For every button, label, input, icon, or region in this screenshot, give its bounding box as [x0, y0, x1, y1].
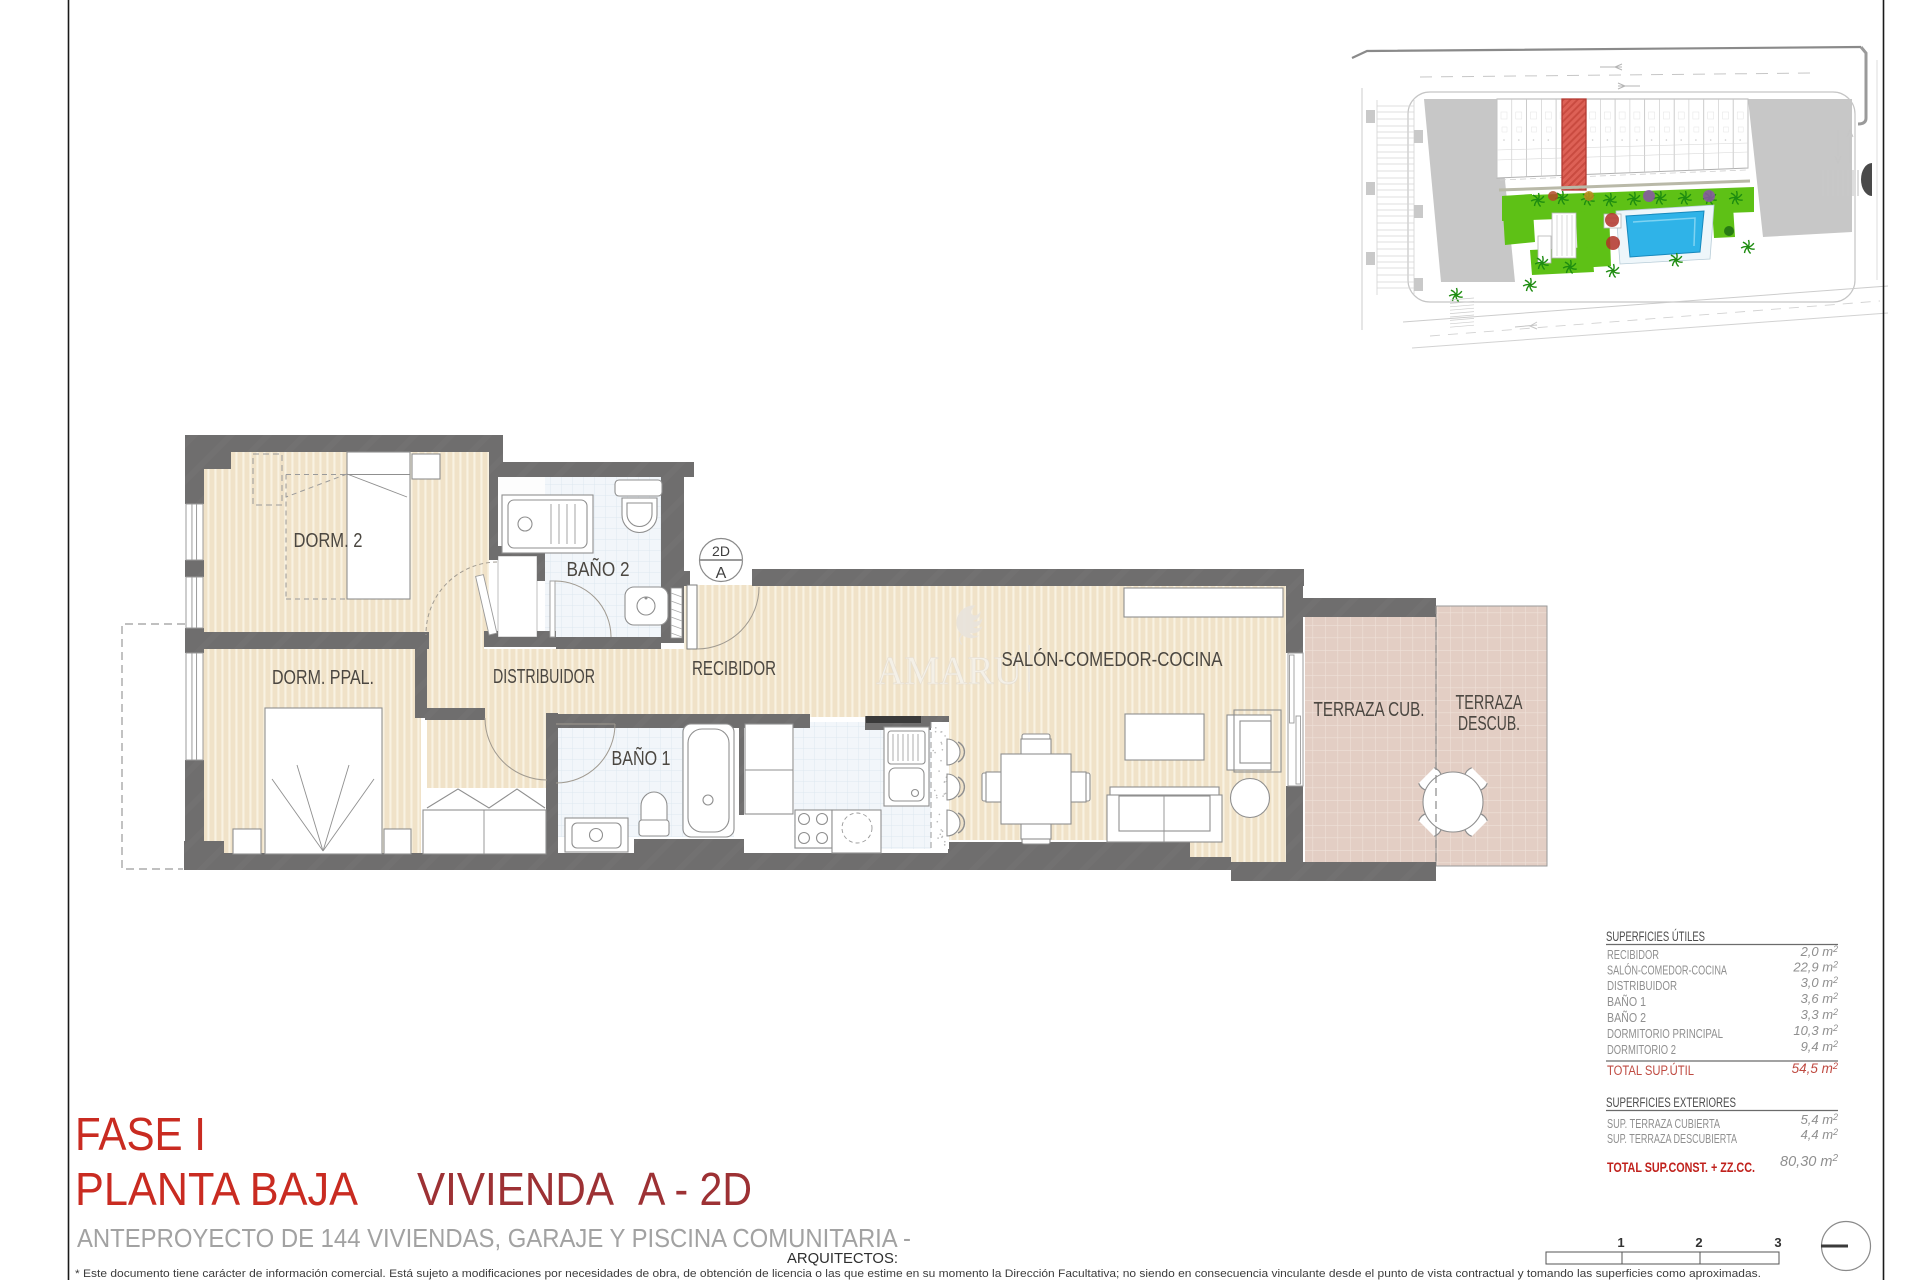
svg-text:22,9 m2: 22,9 m2: [1792, 960, 1838, 975]
svg-text:SUP. TERRAZA CUBIERTA: SUP. TERRAZA CUBIERTA: [1607, 1116, 1720, 1131]
svg-text:3,6 m2: 3,6 m2: [1801, 991, 1839, 1006]
svg-text:1: 1: [1617, 1235, 1624, 1250]
svg-text:3,0 m2: 3,0 m2: [1801, 975, 1839, 990]
svg-text:54,5 m2: 54,5 m2: [1792, 1061, 1838, 1076]
svg-text:2: 2: [1695, 1235, 1702, 1250]
svg-text:4,4 m2: 4,4 m2: [1801, 1127, 1839, 1142]
svg-text:SUPERFICIES ÚTILES: SUPERFICIES ÚTILES: [1606, 929, 1705, 944]
svg-text:TOTAL SUP.CONST. + ZZ.CC.: TOTAL SUP.CONST. + ZZ.CC.: [1607, 1159, 1755, 1175]
svg-text:TOTAL SUP.ÚTIL: TOTAL SUP.ÚTIL: [1607, 1063, 1694, 1078]
svg-text:ANTEPROYECTO DE 144 VIVIENDAS,: ANTEPROYECTO DE 144 VIVIENDAS, GARAJE Y …: [77, 1223, 911, 1253]
svg-text:SUP. TERRAZA DESCUBIERTA: SUP. TERRAZA DESCUBIERTA: [1607, 1131, 1737, 1146]
svg-text:RECIBIDOR: RECIBIDOR: [1607, 947, 1659, 962]
svg-text:PLANTA BAJA: PLANTA BAJA: [75, 1163, 358, 1215]
svg-text:A - 2D: A - 2D: [638, 1163, 752, 1215]
svg-text:9,4 m2: 9,4 m2: [1801, 1039, 1839, 1054]
svg-text:DISTRIBUIDOR: DISTRIBUIDOR: [1607, 978, 1677, 993]
svg-text:BAÑO 1: BAÑO 1: [1607, 994, 1646, 1009]
svg-text:5,4 m2: 5,4 m2: [1801, 1112, 1839, 1127]
svg-text:2,0 m2: 2,0 m2: [1800, 944, 1839, 959]
svg-text:3,3 m2: 3,3 m2: [1801, 1007, 1839, 1022]
svg-text:FASE I: FASE I: [75, 1108, 206, 1160]
svg-text:ARQUITECTOS:: ARQUITECTOS:: [787, 1250, 898, 1267]
svg-text:80,30 m2: 80,30 m2: [1780, 1153, 1838, 1170]
svg-text:BAÑO 2: BAÑO 2: [1607, 1010, 1646, 1025]
svg-text:* Este documento tiene carácte: * Este documento tiene carácter de infor…: [75, 1268, 1761, 1280]
svg-text:SUPERFICIES EXTERIORES: SUPERFICIES EXTERIORES: [1606, 1095, 1736, 1110]
svg-text:VIVIENDA: VIVIENDA: [417, 1163, 614, 1215]
svg-text:3: 3: [1774, 1235, 1781, 1250]
svg-text:SALÓN-COMEDOR-COCINA: SALÓN-COMEDOR-COCINA: [1607, 963, 1727, 978]
svg-text:10,3 m2: 10,3 m2: [1793, 1023, 1838, 1038]
svg-text:DORMITORIO PRINCIPAL: DORMITORIO PRINCIPAL: [1607, 1026, 1723, 1041]
svg-text:DORMITORIO 2: DORMITORIO 2: [1607, 1042, 1676, 1057]
